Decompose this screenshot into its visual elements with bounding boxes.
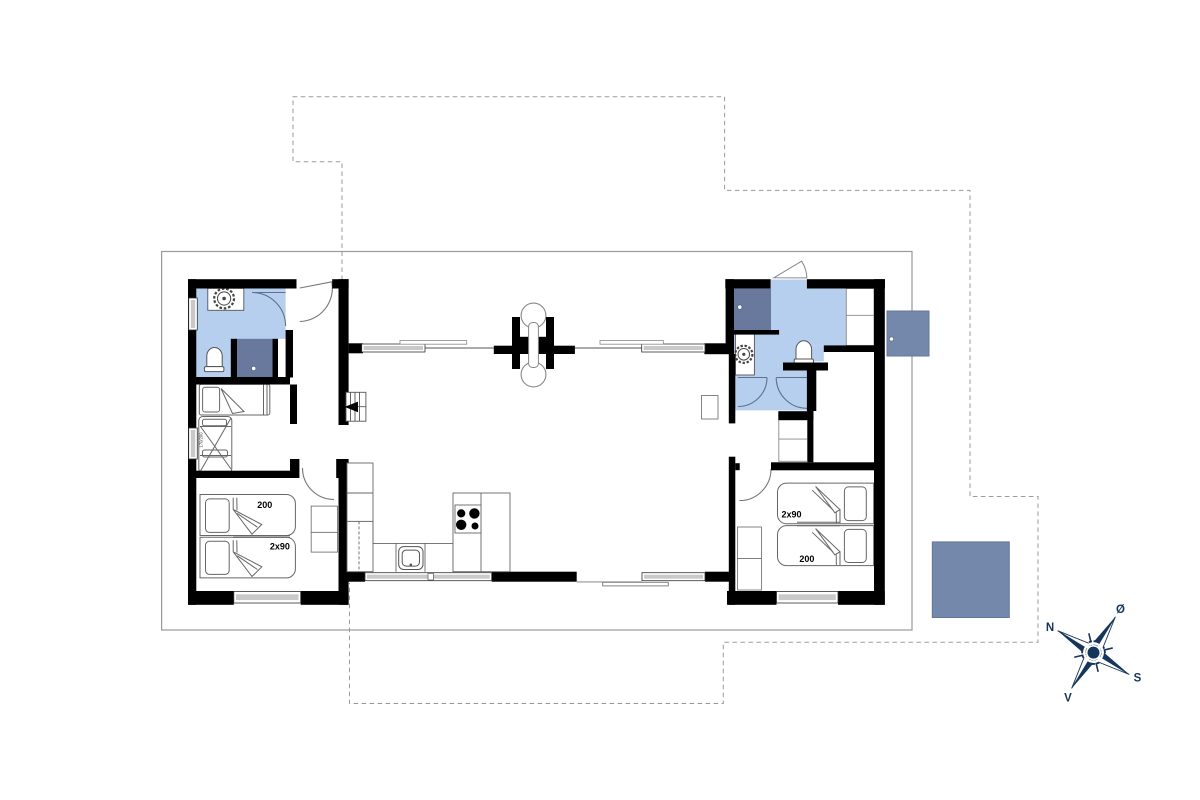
svg-text:200: 200 — [257, 500, 272, 510]
svg-text:S: S — [1134, 673, 1142, 685]
svg-text:2x90: 2x90 — [781, 510, 801, 520]
svg-text:Ø: Ø — [1116, 604, 1125, 616]
svg-text:N: N — [1046, 622, 1054, 634]
svg-text:V: V — [1064, 693, 1072, 705]
svg-text:200: 200 — [799, 554, 814, 564]
svg-text:170/200: 170/200 — [199, 432, 204, 448]
svg-text:2x90: 2x90 — [270, 542, 290, 552]
